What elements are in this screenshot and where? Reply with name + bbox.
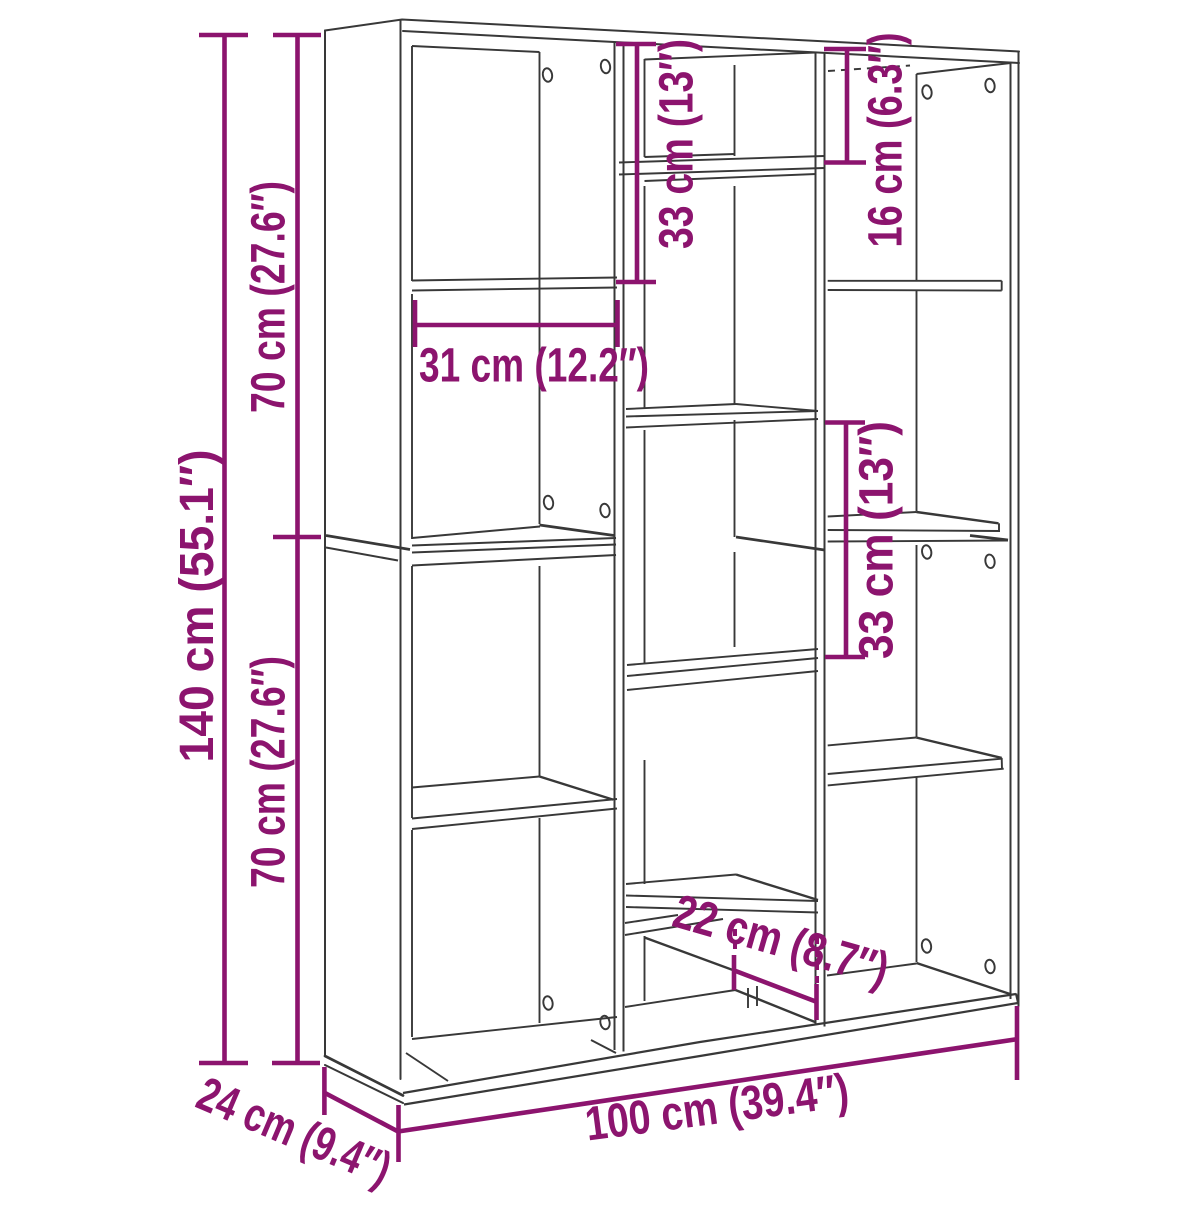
svg-text:140 cm (55.1″): 140 cm (55.1″) — [171, 450, 224, 763]
svg-text:70 cm (27.6″): 70 cm (27.6″) — [243, 656, 296, 888]
svg-text:33 cm (13″): 33 cm (13″) — [851, 421, 904, 659]
svg-text:16 cm (6.3″): 16 cm (6.3″) — [860, 33, 913, 248]
svg-text:70 cm (27.6″): 70 cm (27.6″) — [243, 181, 296, 413]
svg-text:31 cm (12.2″): 31 cm (12.2″) — [419, 340, 649, 393]
svg-text:33 cm (13″): 33 cm (13″) — [651, 39, 704, 249]
